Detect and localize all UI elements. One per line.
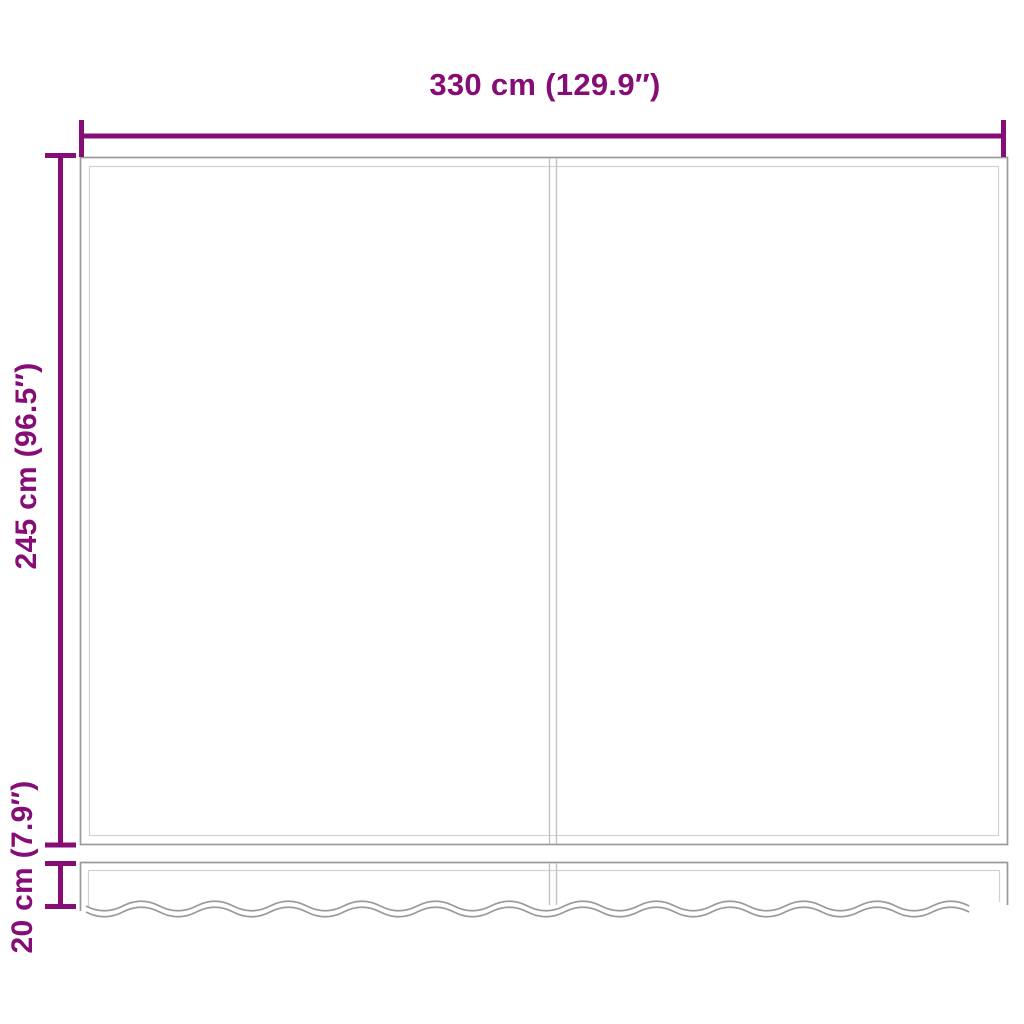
valance-strip: [81, 863, 1008, 917]
valance-dimension-label: 20 cm (7.9″): [6, 747, 40, 987]
height-dimension: [45, 156, 76, 846]
valance-outer-edge: [81, 863, 1008, 912]
height-dimension-label: 245 cm (96.5″): [10, 316, 44, 616]
valance-wave-edge-lower: [86, 907, 969, 917]
fabric-inner-hem-line: [90, 167, 999, 836]
valance-inner-hem-line: [89, 871, 1000, 907]
width-dimension-label: 330 cm (129.9″): [345, 68, 745, 102]
awning-fabric-diagram: [0, 0, 1024, 1024]
valance-wave-edge-upper: [86, 901, 969, 911]
fabric-outer-edge: [81, 158, 1008, 845]
fabric-main-panel: [81, 158, 1008, 845]
width-dimension: [82, 120, 1004, 157]
valance-dimension: [45, 864, 76, 907]
product-dimension-image: 330 cm (129.9″) 245 cm (96.5″) 20 cm (7.…: [0, 0, 1024, 1024]
